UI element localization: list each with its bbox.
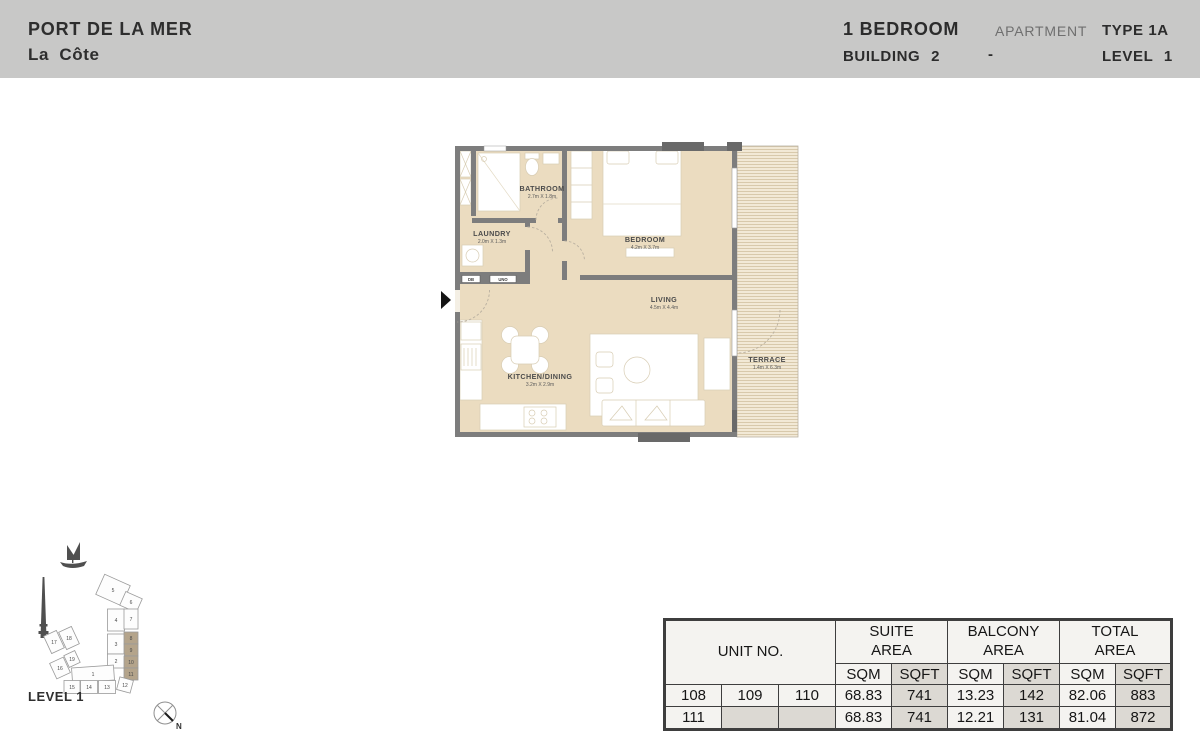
boat-icon: [60, 542, 87, 568]
bathroom-window: [484, 146, 506, 151]
site-block-number: 16: [57, 666, 63, 672]
terrace-door: [732, 310, 737, 356]
site-block-number: 19: [69, 657, 75, 663]
areas-table: UNIT NO. SUITE AREA BALCONY AREA TOTAL A…: [663, 618, 1173, 731]
site-block-number: 8: [130, 636, 133, 642]
areas-table-container: UNIT NO. SUITE AREA BALCONY AREA TOTAL A…: [663, 618, 1173, 731]
sofa: [602, 400, 705, 426]
sqm-header: SQM: [1060, 664, 1116, 685]
stove-counter: [480, 404, 566, 430]
site-block-number: 4: [115, 618, 118, 624]
value-cell: 68.83: [836, 685, 892, 707]
site-block-number: 17: [51, 640, 57, 646]
terrace-deck: [737, 146, 798, 437]
room-label-laundry: LAUNDRY: [473, 229, 511, 238]
value-cell: 741: [892, 685, 948, 707]
coffee-table: [624, 357, 650, 383]
room-dims-kitchen: 3.2m X 2.9m: [526, 382, 554, 388]
value-cell: 12.21: [948, 707, 1004, 730]
toilet: [525, 153, 539, 176]
value-cell: 131: [1004, 707, 1060, 730]
apartment-label: APARTMENT: [995, 23, 1087, 39]
bed: [603, 148, 681, 236]
total-area-header-text: TOTAL AREA: [1077, 623, 1153, 661]
site-block-number: 3: [115, 642, 118, 648]
site-block-number: 5: [112, 588, 115, 594]
site-block-number: 9: [130, 648, 133, 654]
burj-khalifa-icon: [39, 577, 49, 638]
site-block-number: 2: [115, 659, 118, 665]
table-row: 108 109 110 68.83 741 13.23 142 82.06 88…: [665, 685, 1172, 707]
room-label-bathroom: BATHROOM: [520, 184, 565, 193]
balcony-area-header-text: BALCONY AREA: [966, 623, 1042, 661]
room-label-living: LIVING: [651, 295, 677, 304]
site-block-number: 7: [130, 617, 133, 623]
header-bar: PORT DE LA MER La Côte 1 BEDROOM APARTME…: [0, 0, 1200, 78]
site-block-number: 14: [86, 685, 92, 691]
apartment-type: TYPE 1A: [1102, 22, 1169, 39]
floor-plan: DB UNO BATHROOM 2.7m X 1.8m LAUNDRY 2.0m…: [440, 142, 800, 442]
armchair: [596, 378, 613, 393]
unit-cell: [779, 707, 836, 730]
project-title: PORT DE LA MER: [28, 19, 193, 40]
level-label: LEVEL 1: [1102, 48, 1173, 65]
north-label: N: [176, 722, 182, 731]
site-block-number: 11: [128, 672, 133, 678]
value-cell: 872: [1116, 707, 1172, 730]
shower: [478, 153, 520, 211]
washing-machine: [462, 245, 483, 266]
entry-arrow-icon: [441, 291, 451, 309]
tv-unit: [704, 338, 730, 390]
site-block-number: 10: [128, 660, 134, 666]
sqft-header: SQFT: [1004, 664, 1060, 685]
sqft-header: SQFT: [1116, 664, 1172, 685]
unit-no-header: UNIT NO.: [665, 620, 836, 685]
armchair: [596, 352, 613, 367]
site-plan: 1 2 3 4 5 6 7 8 9 10 11 12 13 14 15 16 1…: [20, 535, 210, 737]
site-block-number: 18: [66, 636, 72, 642]
sqm-header: SQM: [948, 664, 1004, 685]
value-cell: 82.06: [1060, 685, 1116, 707]
value-cell: 81.04: [1060, 707, 1116, 730]
sqm-header: SQM: [836, 664, 892, 685]
bathroom-sink: [543, 153, 559, 164]
room-label-kitchen: KITCHEN/DINING: [508, 372, 573, 381]
table-row: 111 68.83 741 12.21 131 81.04 872: [665, 707, 1172, 730]
unit-cell: [722, 707, 779, 730]
value-cell: 741: [892, 707, 948, 730]
room-dims-terrace: 1.4m X 6.3m: [753, 365, 781, 371]
value-cell: 142: [1004, 685, 1060, 707]
site-block-number: 13: [104, 685, 110, 691]
unit-cell: 109: [722, 685, 779, 707]
unit-type-label: 1 BEDROOM: [843, 19, 959, 40]
value-cell: 883: [1116, 685, 1172, 707]
value-cell: 13.23: [948, 685, 1004, 707]
building-label: BUILDING 2: [843, 48, 940, 65]
site-block-number: 1: [92, 672, 95, 678]
page: PORT DE LA MER La Côte 1 BEDROOM APARTME…: [0, 0, 1200, 737]
suite-area-header: SUITE AREA: [836, 620, 948, 664]
total-area-header: TOTAL AREA: [1060, 620, 1172, 664]
uno-panel-label: UNO: [498, 277, 508, 282]
suite-area-header-text: SUITE AREA: [854, 623, 930, 661]
room-dims-laundry: 2.0m X 1.3m: [478, 239, 506, 245]
site-level-label: LEVEL 1: [28, 689, 84, 704]
kitchen-counter: [460, 320, 482, 400]
compass-icon: N: [154, 702, 182, 731]
sqft-header: SQFT: [892, 664, 948, 685]
subproject-title: La Côte: [28, 45, 100, 65]
unit-cell: 111: [665, 707, 722, 730]
unit-cell: 108: [665, 685, 722, 707]
balcony-area-header: BALCONY AREA: [948, 620, 1060, 664]
bedroom-window: [732, 168, 737, 228]
wardrobe: [571, 151, 592, 219]
value-cell: 68.83: [836, 707, 892, 730]
site-block-number: 6: [130, 600, 133, 606]
db-panel-label: DB: [468, 277, 474, 282]
room-label-bedroom: BEDROOM: [625, 235, 665, 244]
unit-cell: 110: [779, 685, 836, 707]
separator-dash: -: [988, 46, 993, 63]
site-block-number: 12: [122, 683, 128, 689]
room-label-terrace: TERRACE: [748, 355, 786, 364]
room-dims-bathroom: 2.7m X 1.8m: [528, 194, 556, 200]
room-dims-bedroom: 4.2m X 3.7m: [631, 245, 659, 251]
room-dims-living: 4.5m X 4.4m: [650, 305, 678, 311]
